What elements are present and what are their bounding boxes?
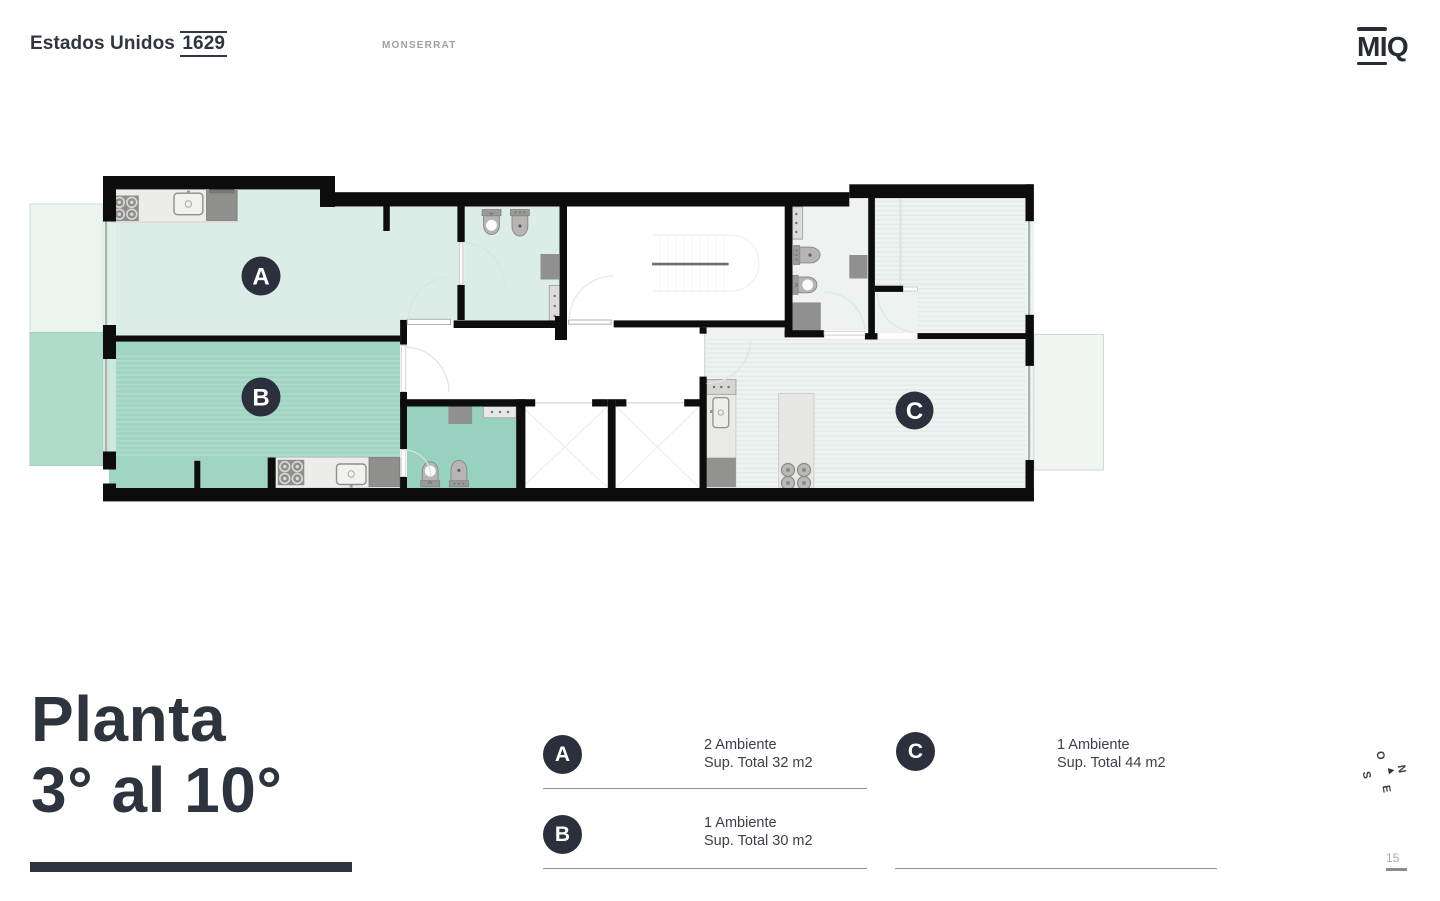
svg-text:B: B [252,385,269,412]
svg-text:O: O [1373,750,1386,761]
svg-text:A: A [252,264,269,291]
svg-text:E: E [1379,784,1392,793]
svg-text:C: C [906,398,923,425]
svg-text:S: S [1360,770,1373,779]
svg-text:N: N [1395,764,1408,774]
